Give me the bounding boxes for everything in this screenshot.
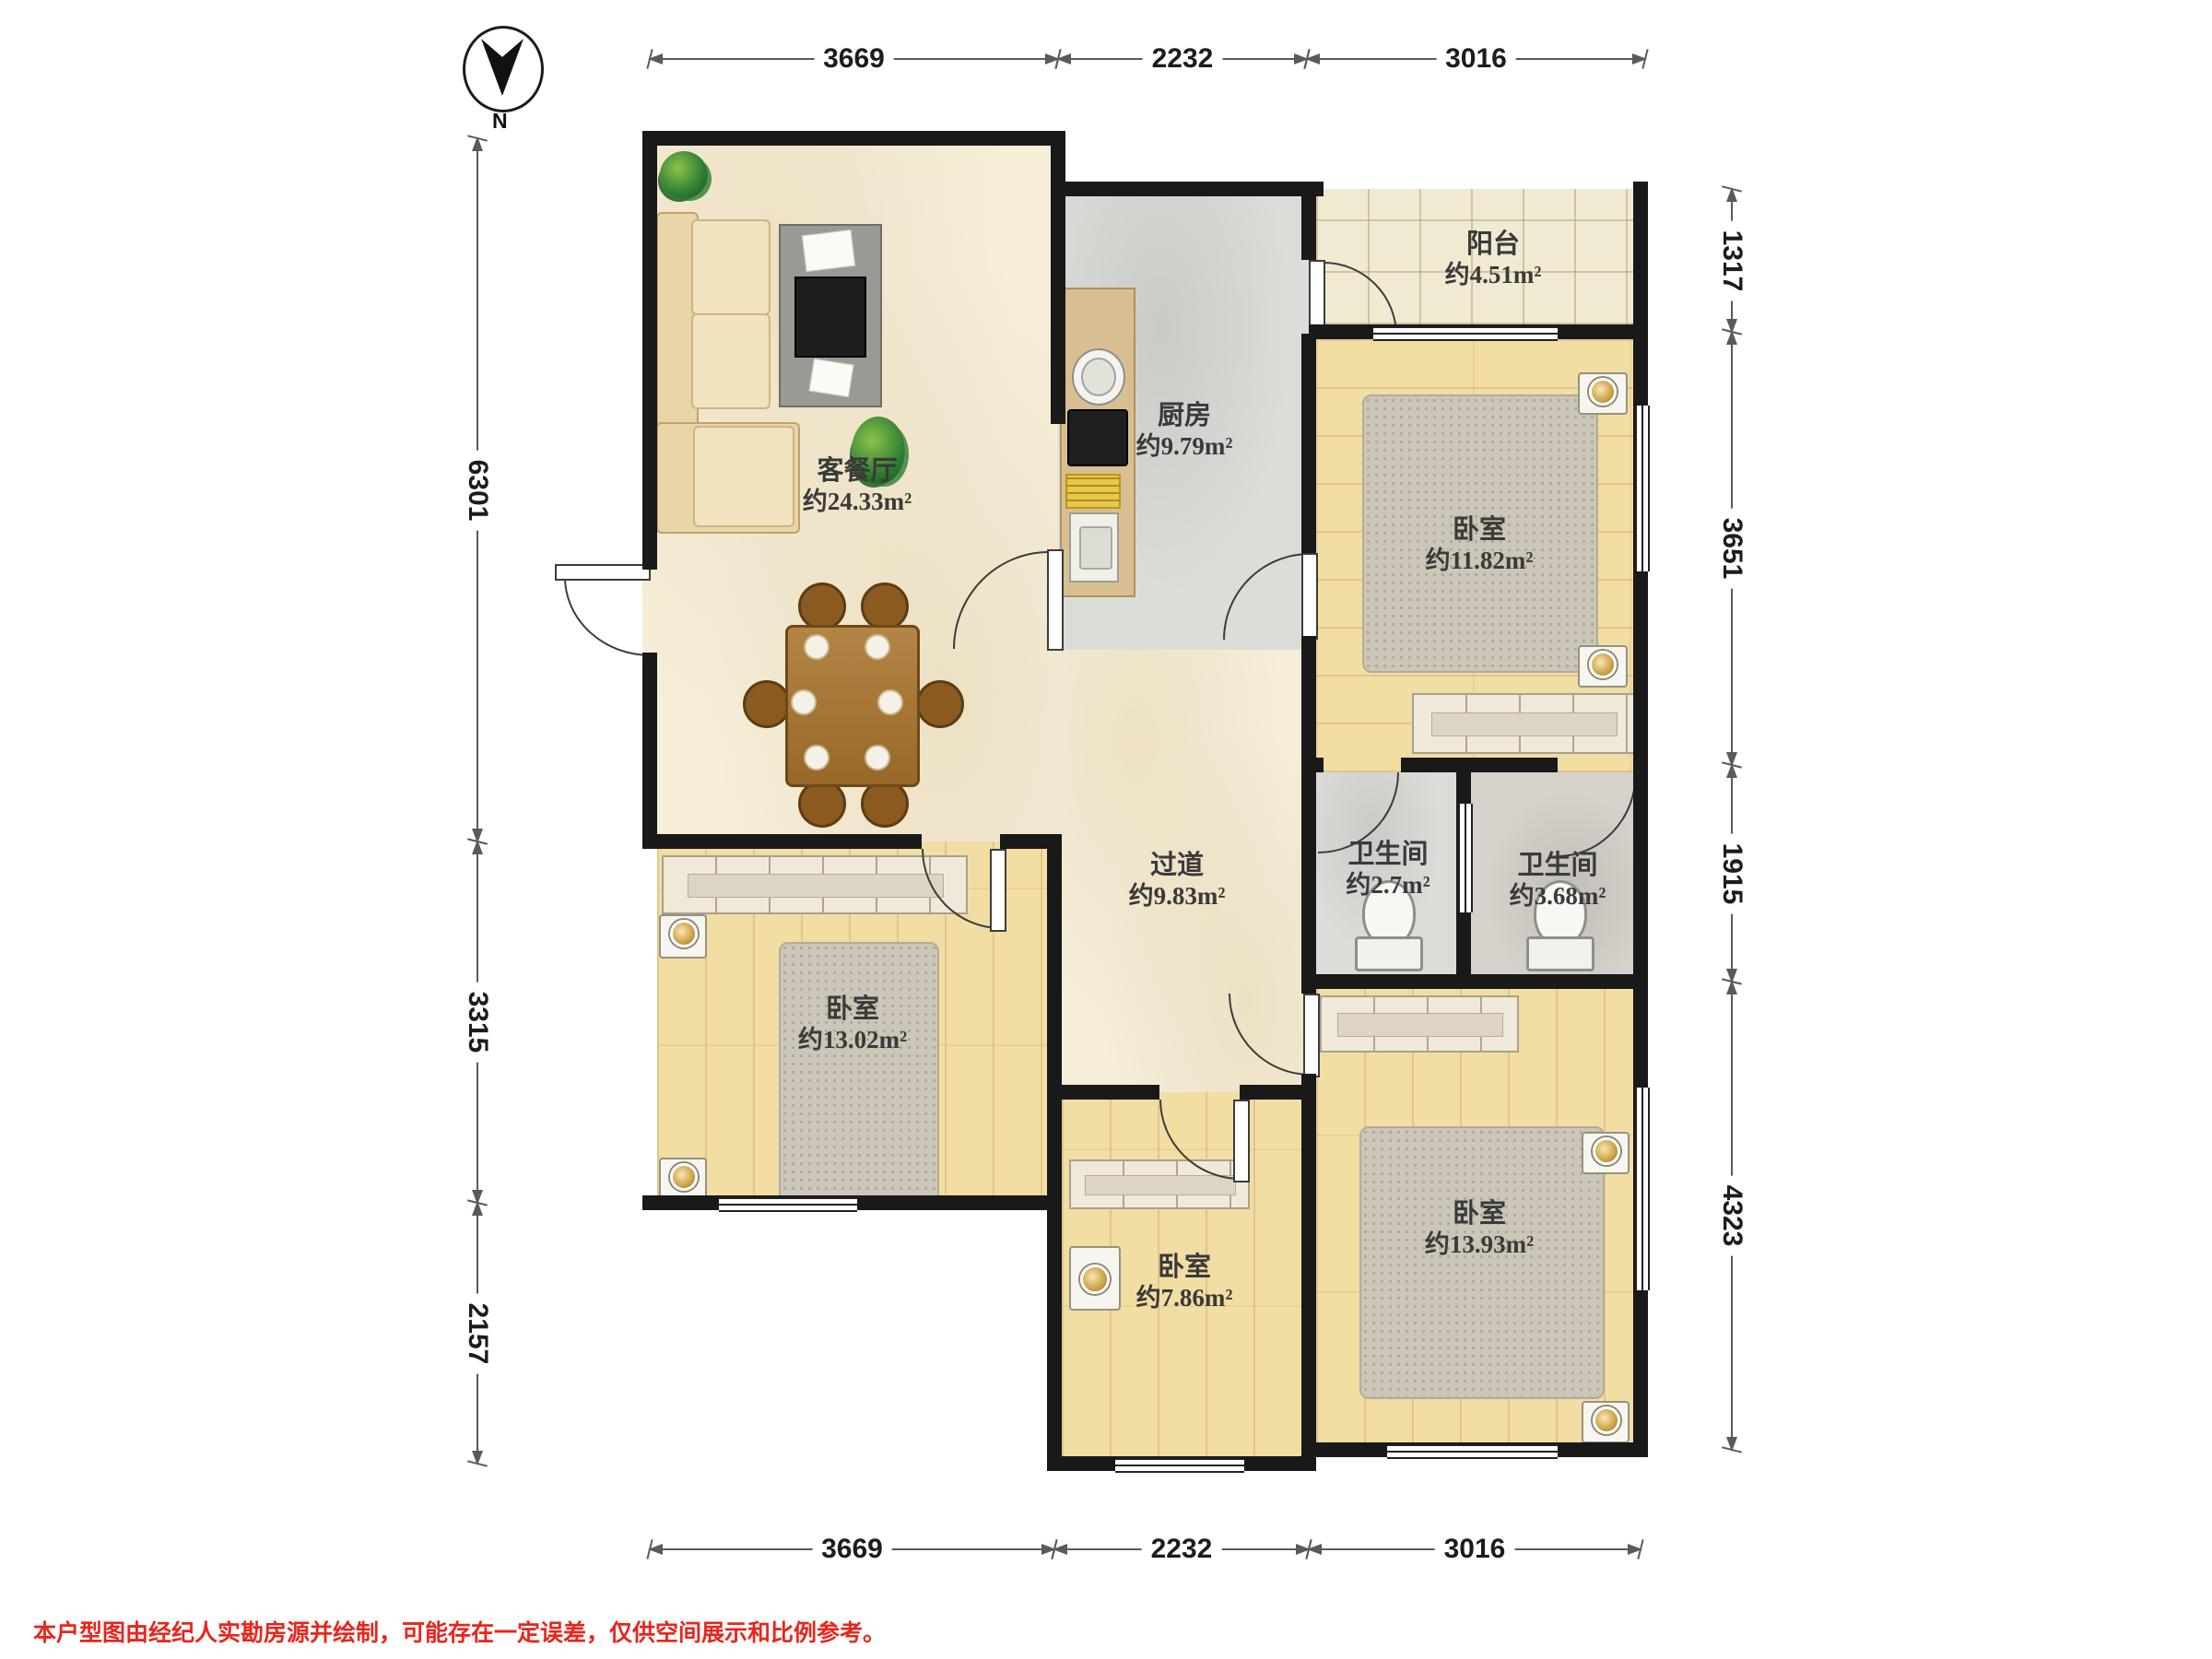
wall-segment <box>1051 131 1065 424</box>
kitchen-door-leaf <box>1047 549 1064 651</box>
dim-value: 1317 <box>1716 220 1747 300</box>
toilet-tank <box>1526 936 1594 971</box>
place-setting <box>791 689 817 715</box>
toilet-tank <box>1355 936 1423 971</box>
place-setting <box>804 634 829 660</box>
wall-segment <box>1301 334 1316 553</box>
wardrobe-rail <box>1337 1013 1503 1036</box>
room-label-kitchen: 厨房 约9.79m² <box>1092 398 1277 463</box>
room-name: 过道 <box>1085 848 1269 881</box>
kitchen-sink-basin <box>1081 358 1116 396</box>
dim-bottom-2: 2232 <box>1054 1548 1309 1550</box>
entry-door-leaf <box>555 564 651 581</box>
bedroom1-door-leaf <box>1301 553 1318 640</box>
dim-value: 4323 <box>1716 1176 1747 1256</box>
lamp-icon <box>670 1163 698 1191</box>
kitchen-basin-unit <box>1069 512 1119 582</box>
wall-segment <box>1401 758 1558 772</box>
room-name: 卧室 <box>1387 1196 1571 1230</box>
dim-left-1: 6301 <box>477 138 478 841</box>
dim-top-3: 3016 <box>1307 58 1645 60</box>
wardrobe-rail <box>1085 1175 1235 1195</box>
dim-right-1: 1317 <box>1731 189 1733 332</box>
dim-value: 3016 <box>1435 1534 1515 1565</box>
tv-icon <box>794 276 866 358</box>
room-label-bathroom1: 卫生间 约2.7m² <box>1309 837 1467 901</box>
dim-value: 2157 <box>462 1293 493 1373</box>
room-area: 约9.83m² <box>1085 881 1269 912</box>
wall-segment <box>1047 834 1062 1471</box>
wall-segment <box>1633 182 1648 339</box>
dim-value: 2232 <box>1142 1534 1222 1565</box>
place-setting <box>804 745 829 771</box>
dim-top-2: 2232 <box>1058 58 1307 60</box>
room-label-hallway: 过道 约9.83m² <box>1085 848 1269 912</box>
room-name: 客餐厅 <box>765 453 949 487</box>
wall-segment <box>1301 636 1316 772</box>
room-name: 卧室 <box>1387 512 1571 546</box>
dim-value: 3016 <box>1436 43 1516 75</box>
lamp-icon <box>1593 1406 1620 1434</box>
room-name: 卫生间 <box>1473 848 1642 881</box>
wardrobe <box>1320 995 1519 1053</box>
room-area: 约13.02m² <box>760 1025 945 1056</box>
dining-chair <box>743 680 791 728</box>
room-name: 阳台 <box>1401 227 1585 260</box>
lamp-icon <box>670 920 698 947</box>
room-label-bedroom2: 卧室 约13.02m² <box>760 992 945 1056</box>
room-name: 卧室 <box>760 992 945 1025</box>
window <box>1387 1444 1558 1459</box>
dim-left-2: 3315 <box>477 841 478 1203</box>
window <box>1373 326 1558 341</box>
dim-value: 3669 <box>814 43 894 75</box>
rug <box>779 942 939 1204</box>
room-name: 厨房 <box>1092 398 1277 431</box>
room-area: 约11.82m² <box>1387 546 1571 577</box>
bedroom2-door-leaf <box>990 849 1006 932</box>
wall-segment <box>1047 1085 1159 1100</box>
room-area: 约13.93m² <box>1387 1230 1571 1261</box>
dim-left-3: 2157 <box>477 1203 478 1464</box>
wardrobe <box>1412 693 1635 754</box>
room-label-bedroom4: 卧室 约13.93m² <box>1387 1196 1571 1261</box>
window <box>1635 406 1650 571</box>
dim-value: 3315 <box>462 982 493 1063</box>
dim-right-3: 1915 <box>1731 765 1733 982</box>
dim-value: 6301 <box>462 450 493 530</box>
wardrobe-rail <box>688 874 944 898</box>
wall-segment <box>642 131 1065 146</box>
dim-right-2: 3651 <box>1731 332 1733 765</box>
dim-value: 3669 <box>812 1534 892 1565</box>
dim-value: 2232 <box>1143 43 1223 75</box>
dining-chair <box>798 582 846 630</box>
wall-segment <box>1301 974 1316 994</box>
wall-segment <box>642 834 922 849</box>
paper <box>808 359 853 397</box>
window <box>1115 1458 1244 1473</box>
place-setting <box>865 634 890 660</box>
room-name: 卧室 <box>1092 1250 1277 1283</box>
bedroom3-door-leaf <box>1233 1100 1250 1182</box>
wardrobe <box>662 855 968 914</box>
room-label-living: 客餐厅 约24.33m² <box>765 453 949 518</box>
window <box>719 1197 857 1212</box>
cutting-board <box>1065 474 1121 509</box>
dim-bottom-3: 3016 <box>1309 1548 1641 1550</box>
room-label-bedroom3: 卧室 约7.86m² <box>1092 1250 1277 1314</box>
place-setting <box>865 745 890 771</box>
wall-segment <box>642 653 657 841</box>
room-name: 卫生间 <box>1309 837 1467 870</box>
room-label-balcony: 阳台 约4.51m² <box>1401 227 1585 291</box>
wall-segment <box>1309 974 1648 989</box>
wall-segment <box>1301 1074 1316 1471</box>
entry-door-arc <box>564 577 651 656</box>
wall-segment <box>1301 182 1316 260</box>
room-area: 约2.7m² <box>1309 870 1467 901</box>
sofa-cushion <box>691 219 771 315</box>
lamp-icon <box>1589 378 1617 406</box>
basin <box>1079 526 1112 570</box>
room-label-bedroom1: 卧室 约11.82m² <box>1387 512 1571 577</box>
sofa-cushion <box>691 313 771 409</box>
window <box>1635 1088 1650 1290</box>
bedroom4-door-leaf <box>1303 994 1320 1077</box>
room-area: 约9.79m² <box>1092 431 1277 463</box>
lamp-icon <box>1593 1137 1620 1165</box>
room-area: 约4.51m² <box>1401 260 1585 291</box>
wall-segment <box>642 131 657 570</box>
dining-chair <box>916 680 964 728</box>
plant-icon <box>660 151 708 199</box>
dim-value: 3651 <box>1716 509 1747 589</box>
dim-top-1: 3669 <box>650 58 1058 60</box>
north-label: N <box>492 109 508 134</box>
wall-segment <box>1051 182 1324 196</box>
room-area: 约7.86m² <box>1092 1283 1277 1314</box>
lamp-icon <box>1589 651 1617 678</box>
dim-right-4: 4323 <box>1731 982 1733 1450</box>
dim-bottom-1: 3669 <box>650 1548 1054 1550</box>
room-label-bathroom2: 卫生间 约3.68m² <box>1473 848 1642 912</box>
dining-chair <box>861 582 909 630</box>
rug <box>1359 1126 1605 1399</box>
disclaimer-text: 本户型图由经纪人实勘房源并绘制，可能存在一定误差，仅供空间展示和比例参考。 <box>33 1615 886 1648</box>
room-area: 约24.33m² <box>765 487 949 518</box>
dim-value: 1915 <box>1716 833 1747 913</box>
wardrobe-rail <box>1431 712 1618 737</box>
room-area: 约3.68m² <box>1473 881 1642 912</box>
floorplan-page: { "compass": { "north_label": "N" }, "di… <box>0 0 2212 1659</box>
place-setting <box>877 689 903 715</box>
paper <box>802 229 855 272</box>
